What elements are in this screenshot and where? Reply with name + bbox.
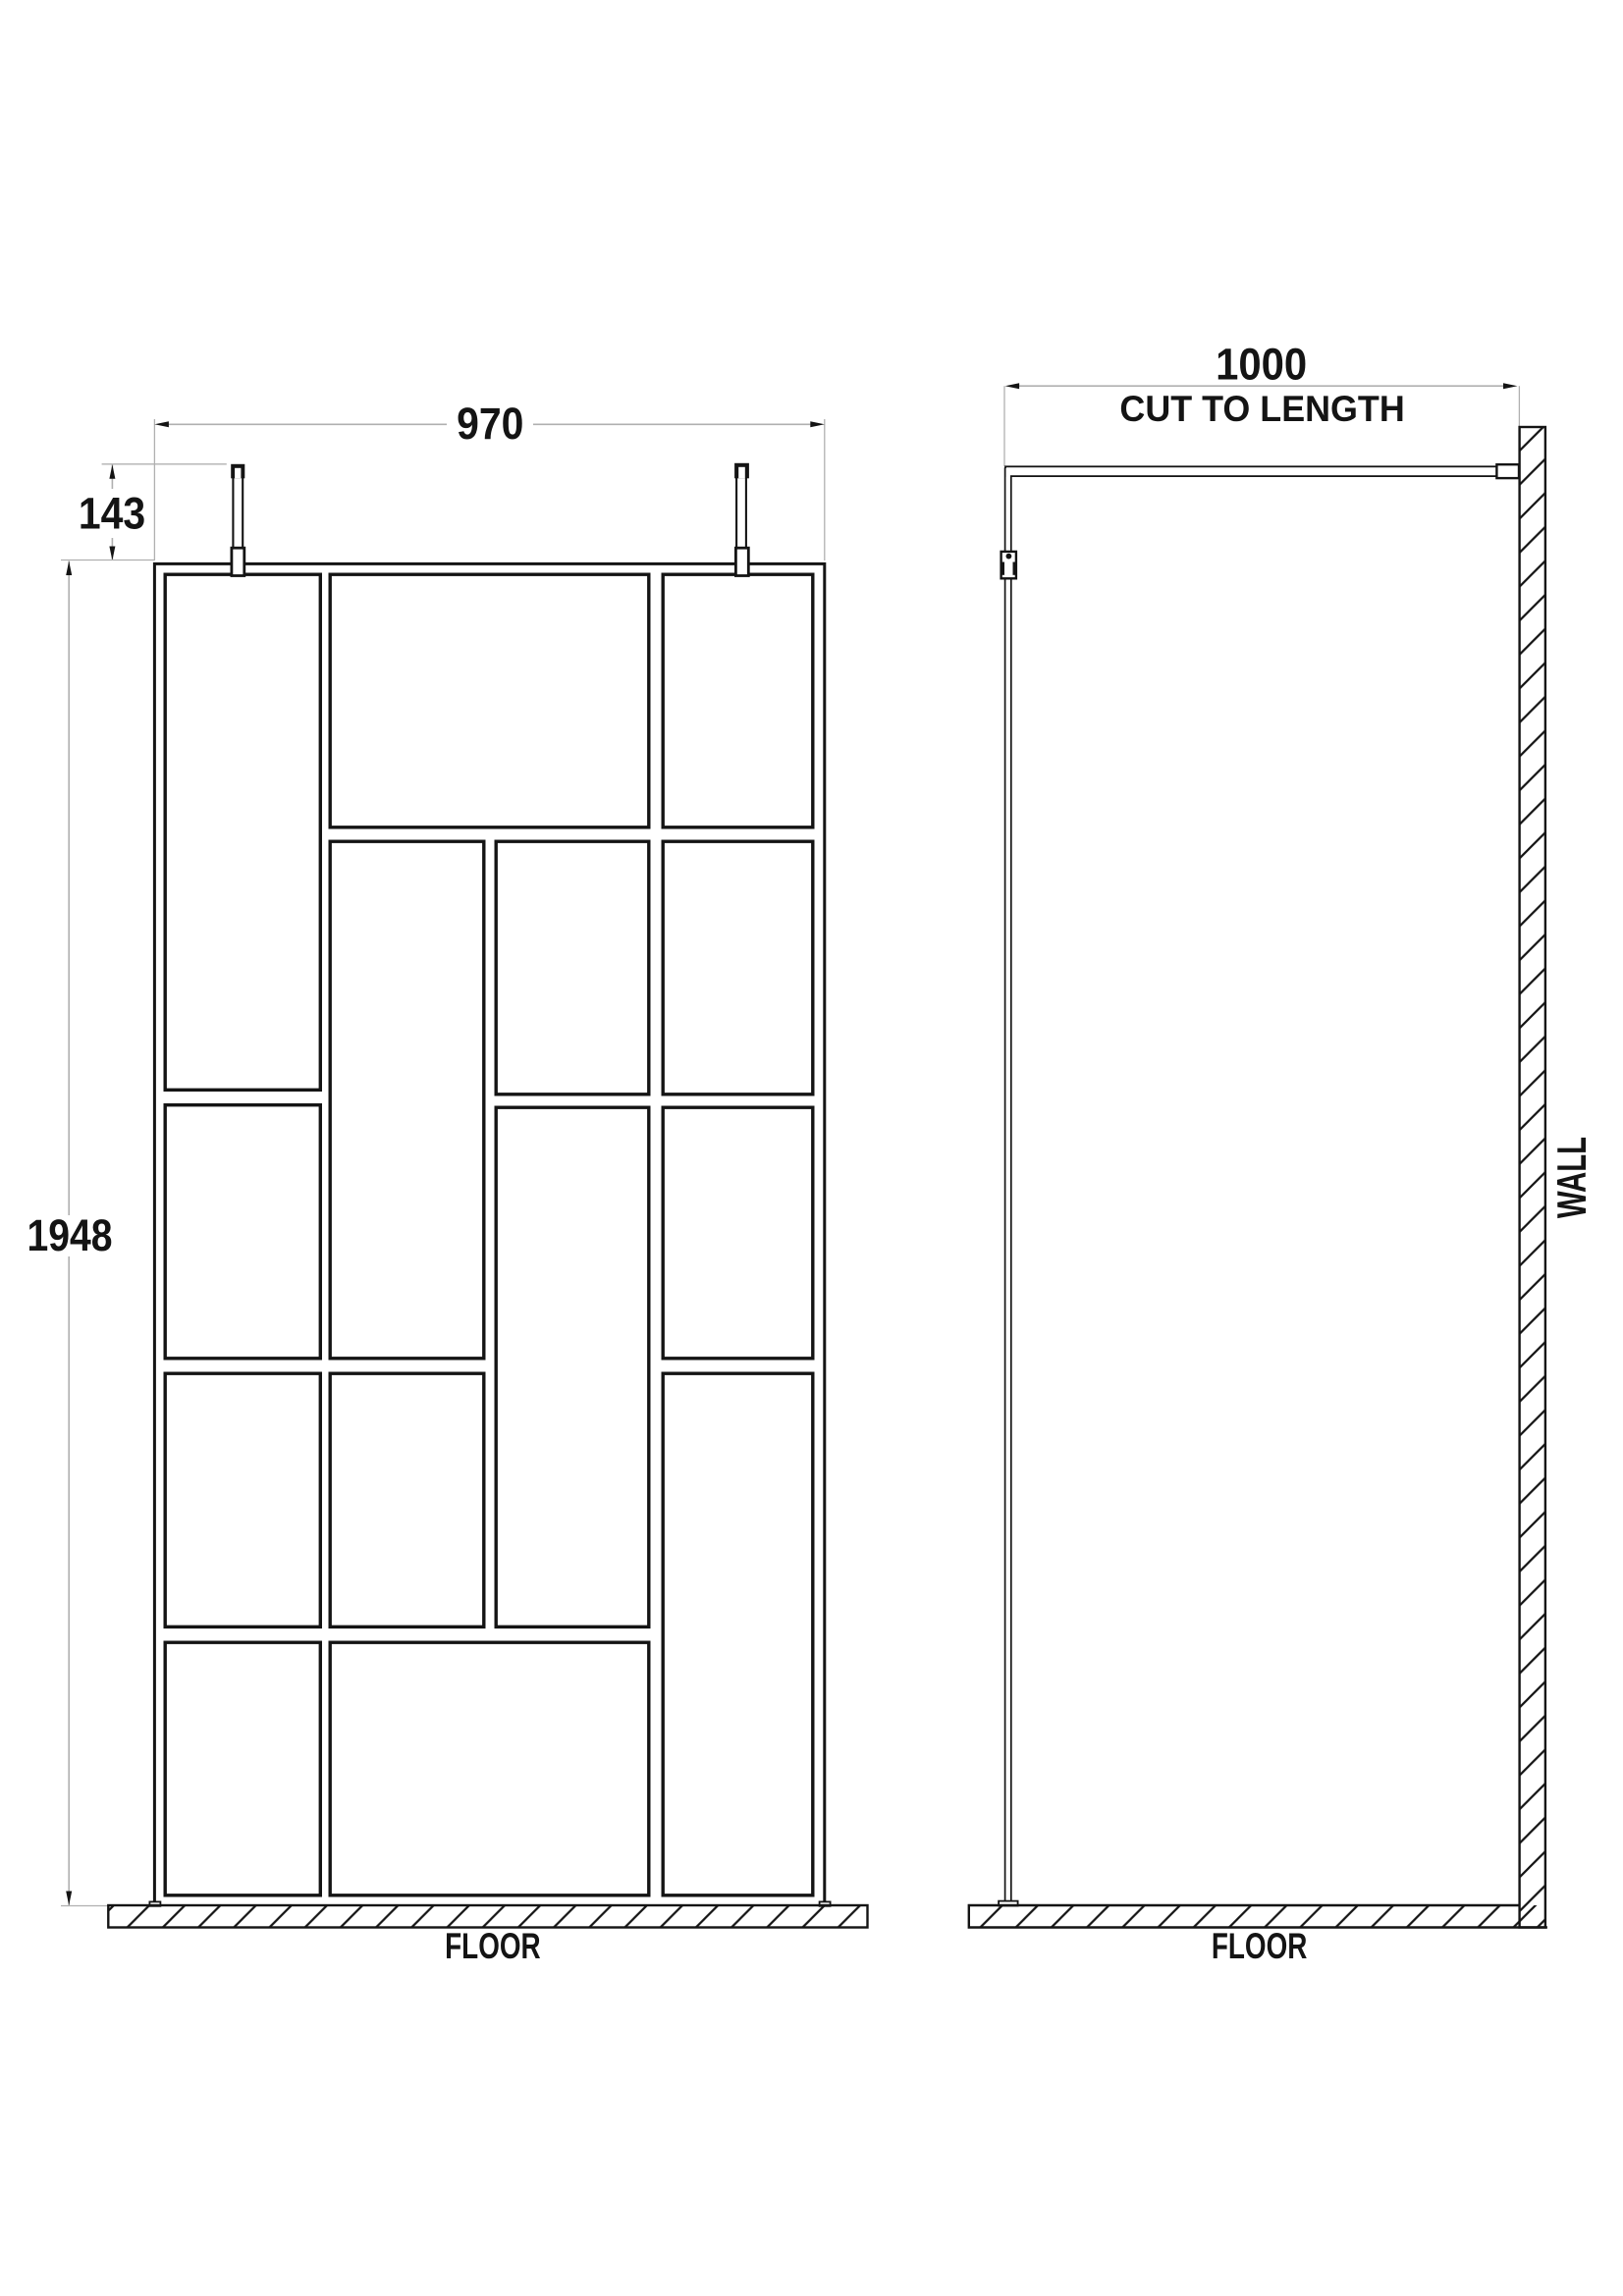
svg-text:970: 970 [457, 400, 523, 449]
svg-text:WALL: WALL [1548, 1137, 1596, 1218]
svg-text:CUT TO LENGTH: CUT TO LENGTH [1119, 389, 1404, 430]
svg-text:FLOOR: FLOOR [445, 1925, 540, 1966]
svg-text:1000: 1000 [1216, 341, 1307, 390]
svg-text:1948: 1948 [27, 1210, 112, 1259]
svg-text:143: 143 [79, 490, 145, 539]
svg-text:FLOOR: FLOOR [1212, 1925, 1307, 1966]
